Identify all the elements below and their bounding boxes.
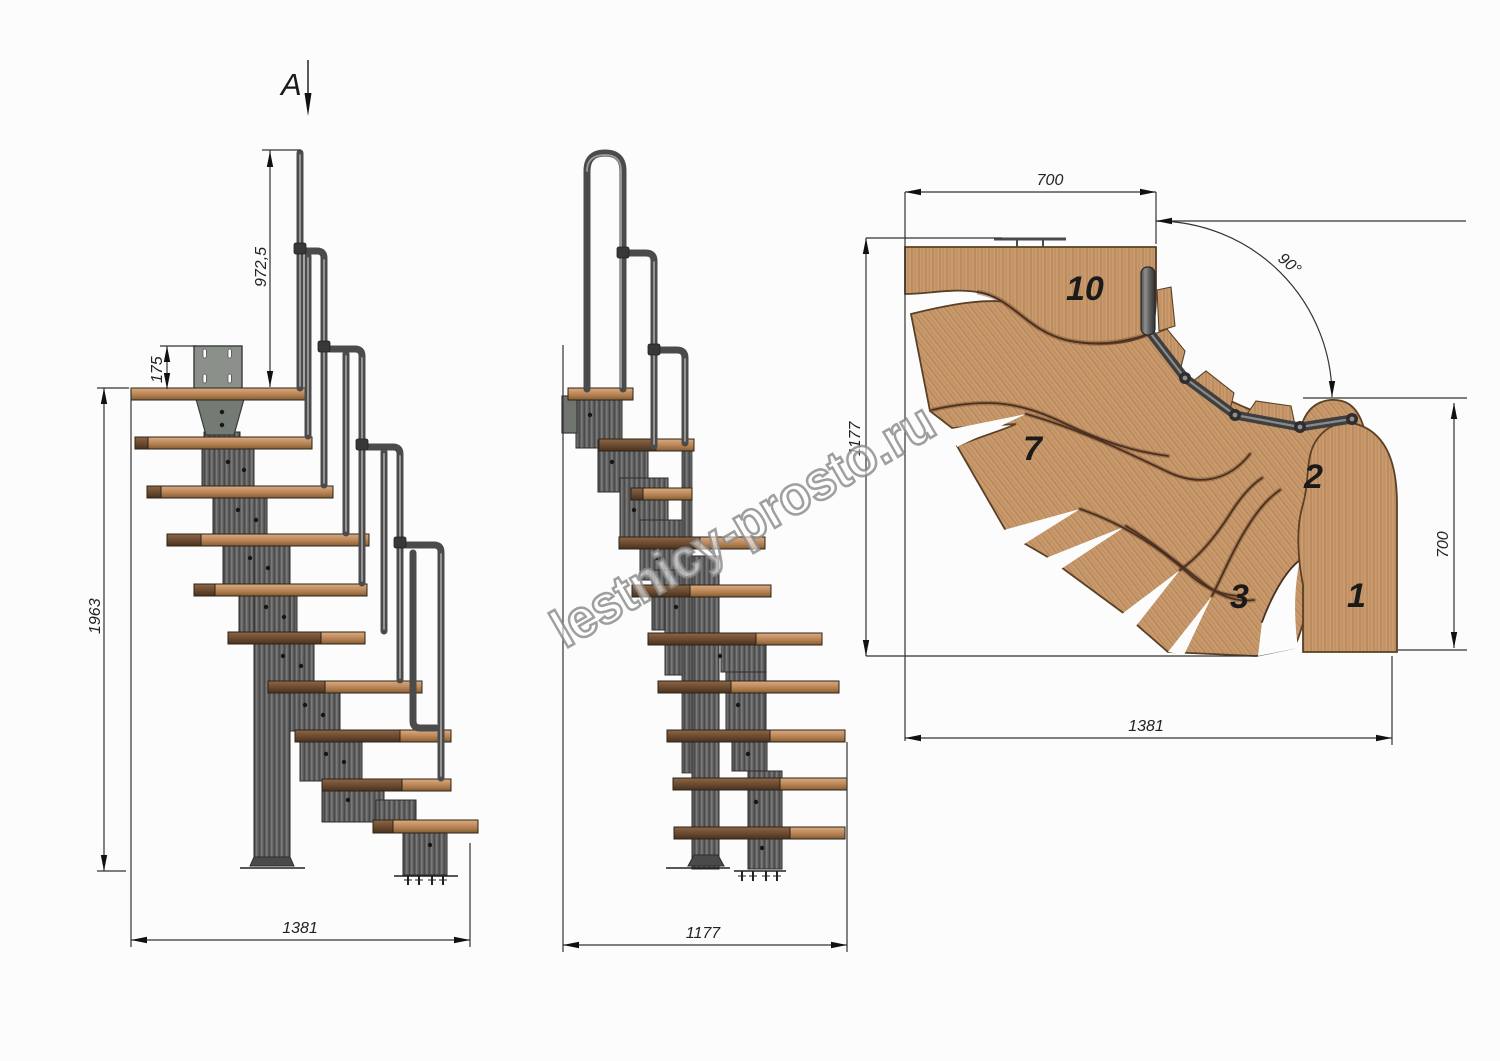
svg-text:1381: 1381 — [1128, 718, 1164, 735]
svg-text:1381: 1381 — [282, 920, 318, 937]
svg-text:2: 2 — [1303, 458, 1323, 496]
svg-text:1963: 1963 — [87, 598, 104, 634]
svg-text:175: 175 — [149, 356, 166, 383]
svg-text:1177: 1177 — [686, 925, 722, 942]
svg-text:972,5: 972,5 — [253, 247, 270, 287]
svg-text:1: 1 — [1347, 577, 1366, 615]
svg-text:700: 700 — [1435, 531, 1452, 558]
svg-text:3: 3 — [1230, 578, 1249, 616]
svg-text:10: 10 — [1066, 270, 1104, 308]
svg-text:7: 7 — [1023, 430, 1044, 468]
svg-text:A: A — [279, 67, 302, 102]
svg-text:700: 700 — [1037, 172, 1064, 189]
